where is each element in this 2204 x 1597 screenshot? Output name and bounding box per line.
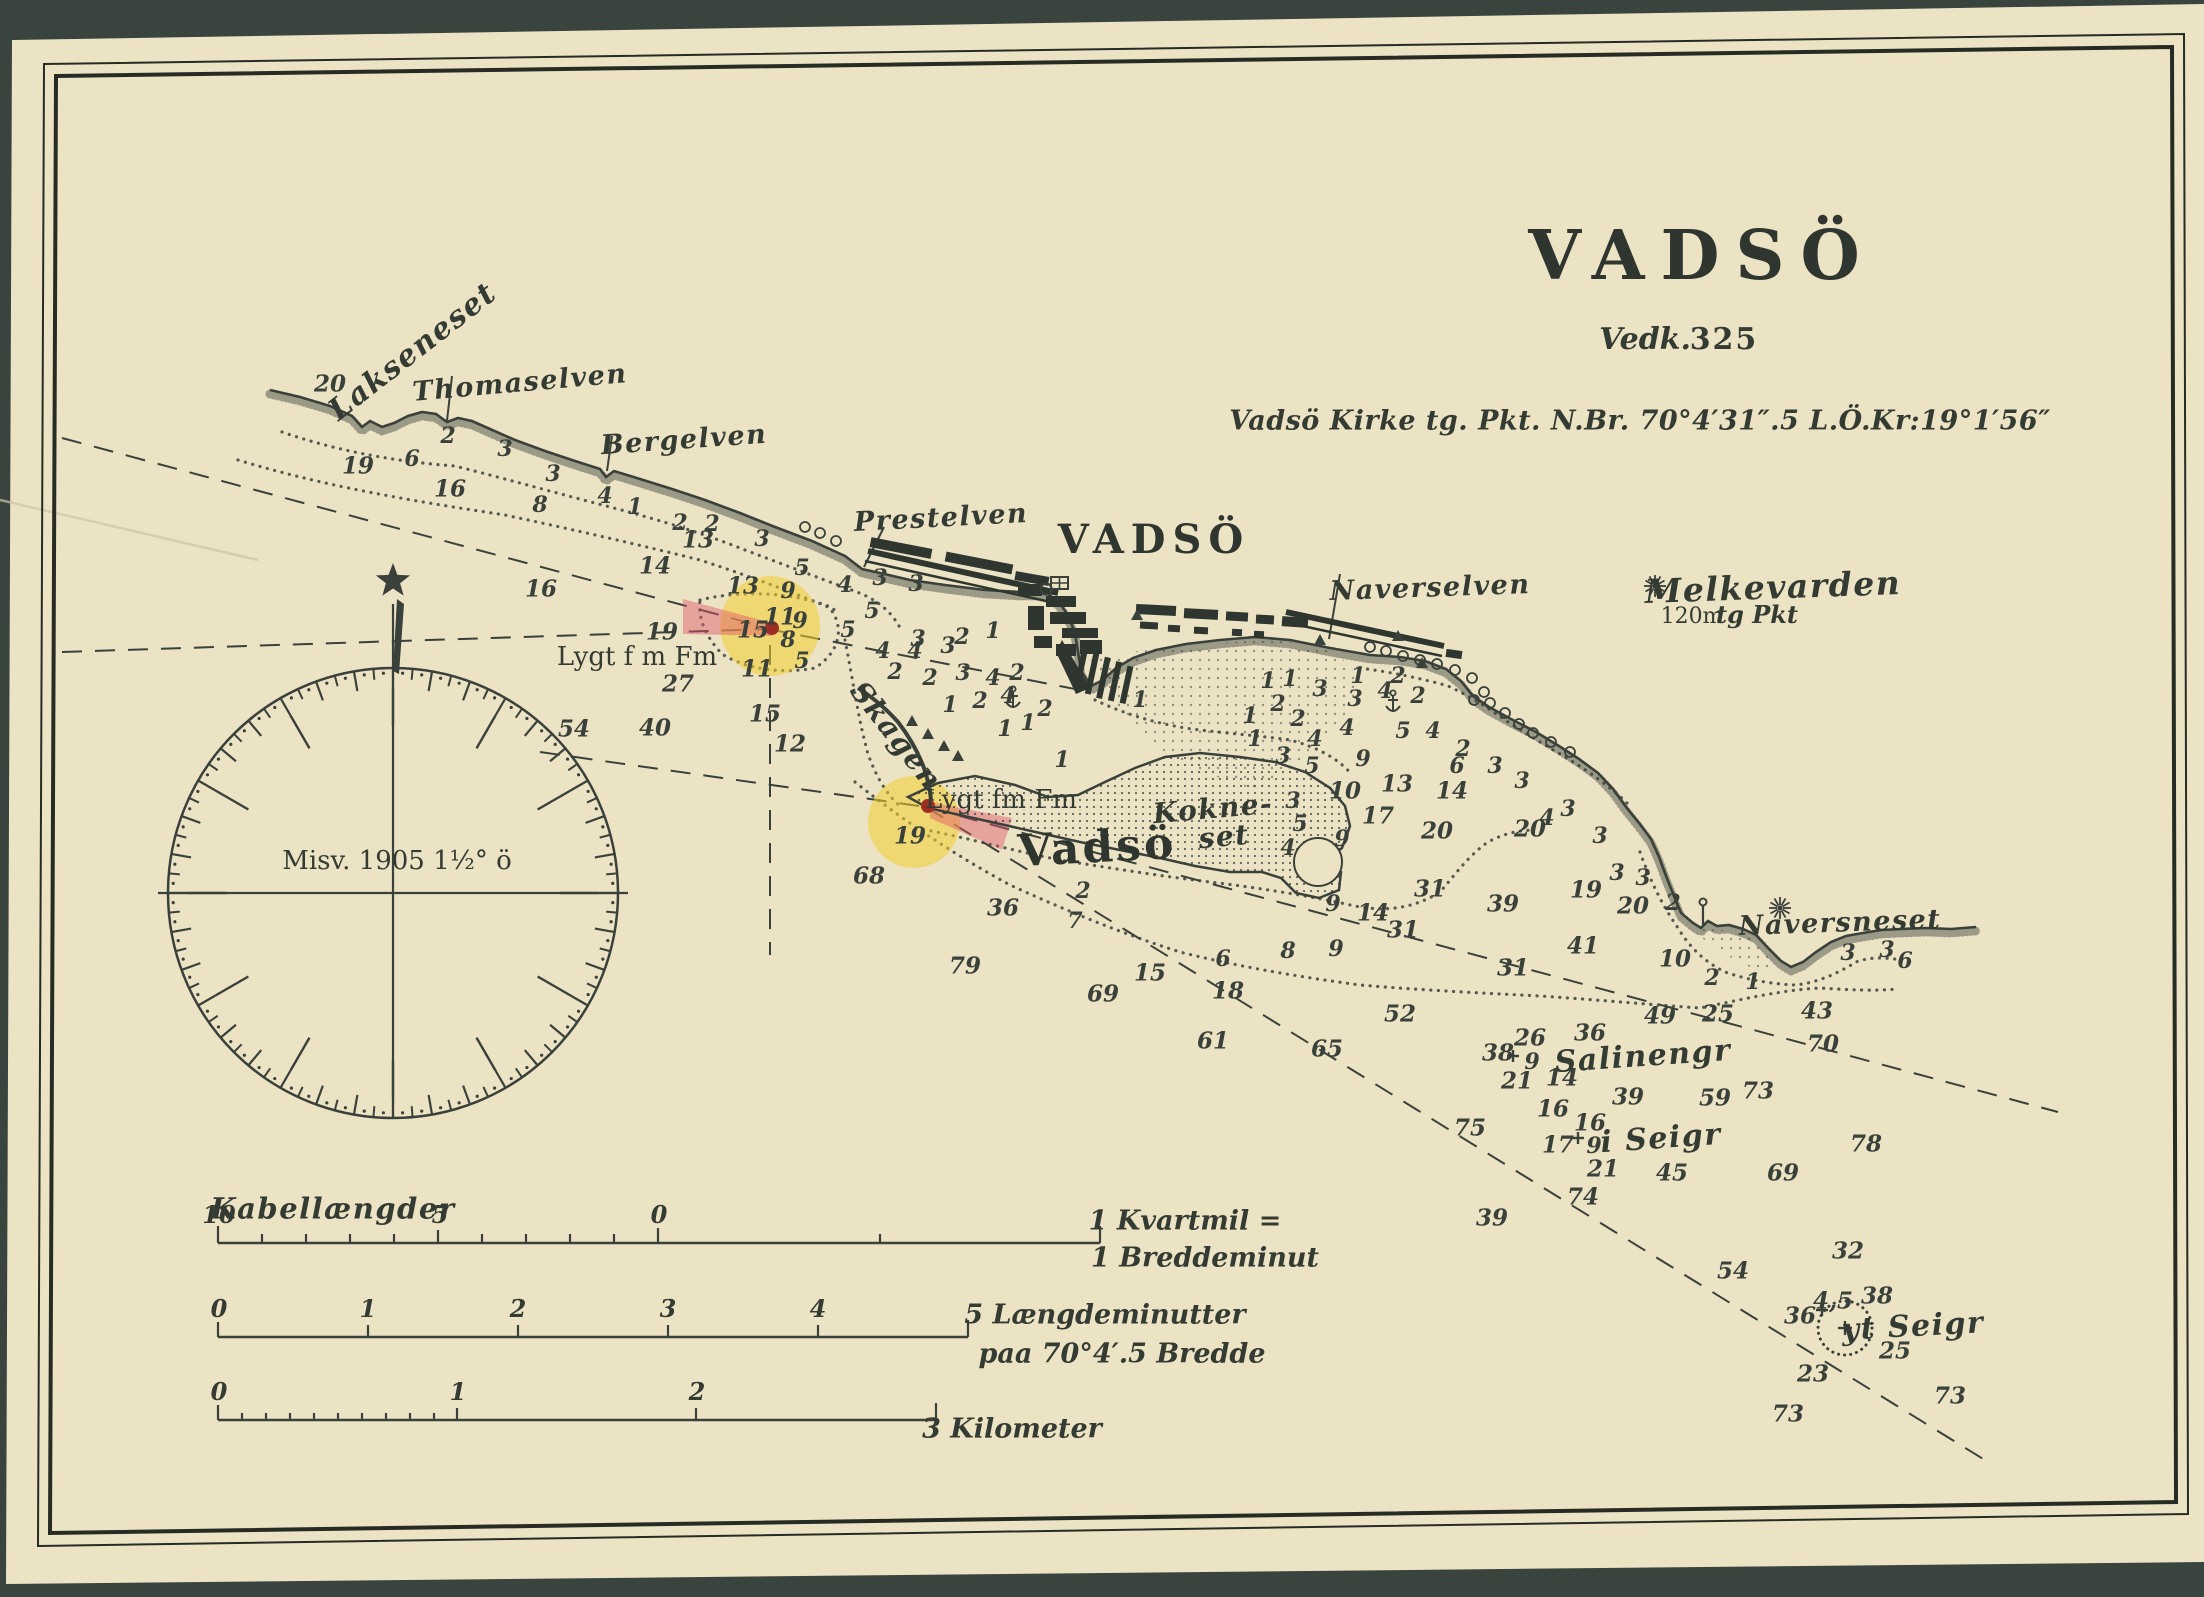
chart-title: VADSÖ [1528, 222, 1876, 290]
chart-ref-number: 325 [1690, 325, 1759, 355]
scale-longminutes-label-2: paa 70°4′.5 Bredde [979, 1341, 1266, 1368]
declination-note: Misv. 1905 1½° ö [282, 848, 512, 874]
lighthouse-icon [765, 621, 779, 635]
scale-longminutes-label-1: 5 Længdeminutter [964, 1302, 1245, 1329]
position-line: Vadsö Kirke tg. Pkt. N.Br. 70°4′31″.5 L.… [1229, 408, 2051, 435]
scale-kvartmil-label-2: 1 Breddeminut [1091, 1245, 1319, 1272]
chart-canvas: VADSÖ Vedk. 325 Vadsö Kirke tg. Pkt. N.B… [0, 0, 2204, 1597]
lighthouse-icon [921, 799, 935, 813]
chart-ref-label: Vedk. [1599, 325, 1691, 355]
scale-kvartmil-label-1: 1 Kvartmil = [1089, 1208, 1282, 1235]
island-pond [1294, 838, 1342, 886]
scale-kilometer-label: 3 Kilometer [922, 1416, 1102, 1443]
